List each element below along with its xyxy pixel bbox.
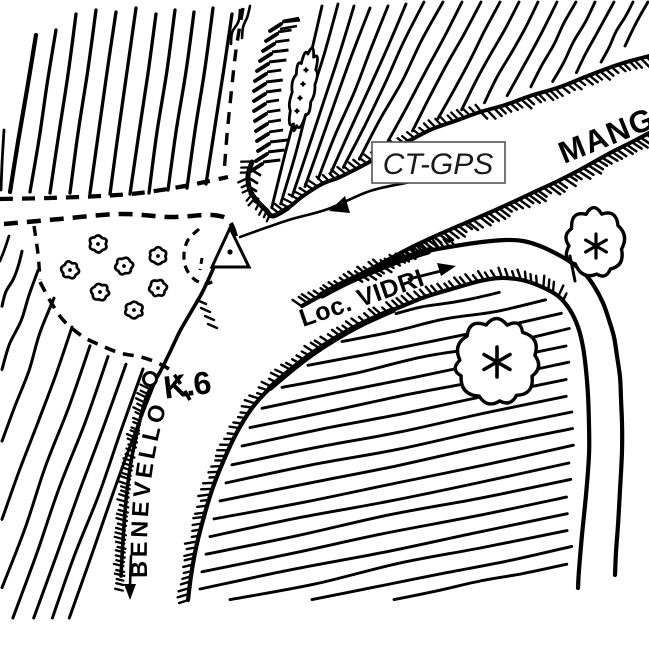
svg-text:K.6: K.6 xyxy=(161,364,212,405)
svg-text:CT-GPS: CT-GPS xyxy=(383,148,494,181)
